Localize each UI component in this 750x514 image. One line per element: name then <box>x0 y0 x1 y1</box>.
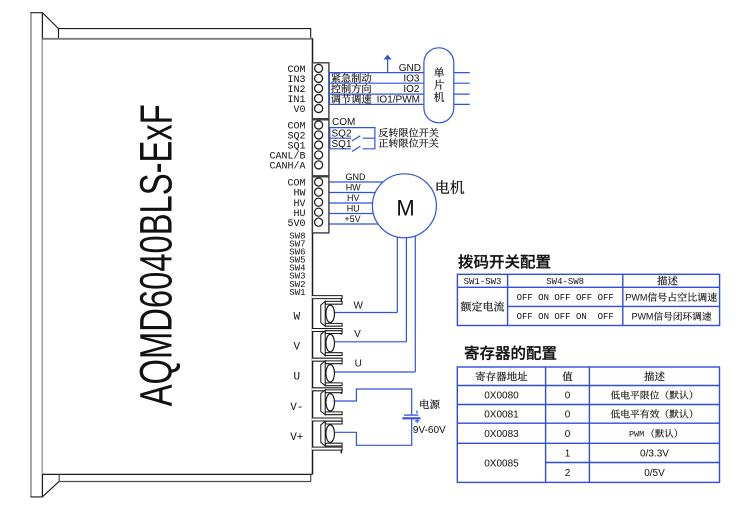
svg-text:HU: HU <box>347 204 360 214</box>
svg-text:0X0083: 0X0083 <box>484 429 519 440</box>
svg-text:+5V: +5V <box>344 214 360 224</box>
svg-text:U: U <box>293 371 300 383</box>
svg-text:0/3.3V: 0/3.3V <box>640 449 669 460</box>
svg-text:SQ2: SQ2 <box>332 128 352 139</box>
svg-text:CANH/A: CANH/A <box>269 161 305 173</box>
svg-text:0/5V: 0/5V <box>644 468 665 479</box>
svg-text:W: W <box>293 312 300 324</box>
svg-text:SW1: SW1 <box>289 288 305 298</box>
svg-text:IO1/PWM: IO1/PWM <box>377 95 420 106</box>
svg-text:PWM: PWM <box>625 292 647 302</box>
svg-text:0: 0 <box>565 429 571 440</box>
svg-text:OFF ON OFF OFF OFF: OFF ON OFF OFF OFF <box>517 293 614 303</box>
svg-text:SW1-SW3: SW1-SW3 <box>464 277 502 287</box>
svg-text:V: V <box>293 342 300 354</box>
svg-text:0X0081: 0X0081 <box>484 410 519 421</box>
svg-text:PWM: PWM <box>629 429 644 439</box>
svg-text:W: W <box>353 301 363 312</box>
svg-text:0X0085: 0X0085 <box>484 459 519 470</box>
svg-text:0: 0 <box>565 391 571 402</box>
svg-text:V-: V- <box>290 402 303 414</box>
svg-text:0X0080: 0X0080 <box>484 391 519 402</box>
svg-text:OFF ON OFF ON OFF: OFF ON OFF ON OFF <box>517 312 614 322</box>
svg-text:PWM: PWM <box>631 311 653 321</box>
svg-text:SW4-SW8: SW4-SW8 <box>546 277 584 287</box>
svg-text:1: 1 <box>565 449 571 460</box>
svg-text:IO3: IO3 <box>403 74 420 85</box>
svg-text:IO2: IO2 <box>403 84 420 95</box>
svg-text:V+: V+ <box>290 432 303 444</box>
svg-text:9V-60V: 9V-60V <box>413 425 446 436</box>
svg-text:GND: GND <box>346 172 367 182</box>
svg-text:GND: GND <box>399 63 421 74</box>
svg-text:COM: COM <box>332 117 355 128</box>
svg-text:V: V <box>354 329 361 340</box>
svg-text:SQ1: SQ1 <box>332 139 352 150</box>
svg-text:HV: HV <box>347 193 360 203</box>
svg-text:V0: V0 <box>293 105 305 116</box>
svg-text:2: 2 <box>565 468 571 479</box>
svg-text:M: M <box>396 195 414 220</box>
svg-text:0: 0 <box>565 410 571 421</box>
svg-text:HW: HW <box>346 183 361 193</box>
svg-text:5V0: 5V0 <box>287 219 305 230</box>
svg-text:U: U <box>355 358 362 369</box>
svg-text:AQMD6040BLS-ExF: AQMD6040BLS-ExF <box>132 104 182 406</box>
